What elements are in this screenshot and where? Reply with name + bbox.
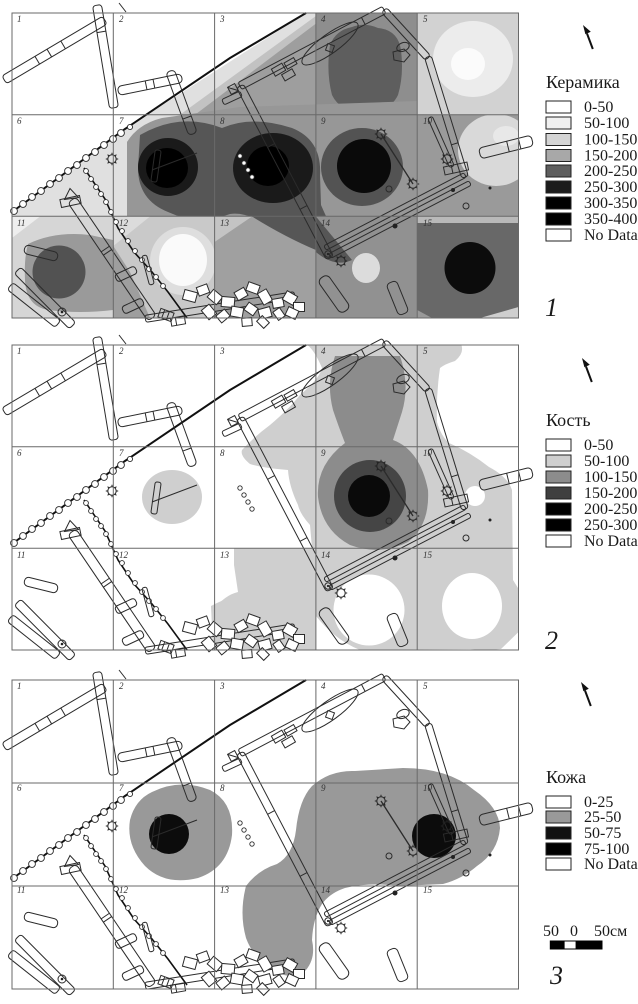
- svg-text:No Data: No Data: [584, 227, 638, 244]
- svg-text:0: 0: [570, 923, 578, 940]
- svg-text:No Data: No Data: [584, 856, 638, 873]
- svg-text:50-75: 50-75: [584, 825, 621, 842]
- svg-text:2: 2: [545, 626, 558, 655]
- svg-text:100-150: 100-150: [584, 469, 637, 486]
- svg-text:50-100: 50-100: [584, 115, 629, 132]
- svg-text:200-250: 200-250: [584, 163, 637, 180]
- svg-text:250-300: 250-300: [584, 517, 637, 534]
- svg-text:25-50: 25-50: [584, 809, 621, 826]
- svg-text:150-200: 150-200: [584, 485, 637, 502]
- svg-text:1: 1: [545, 293, 558, 322]
- svg-text:Кость: Кость: [546, 410, 591, 430]
- svg-text:3: 3: [549, 961, 563, 990]
- svg-text:150-200: 150-200: [584, 148, 637, 165]
- svg-text:50см: 50см: [594, 923, 627, 940]
- svg-text:No Data: No Data: [584, 533, 638, 550]
- svg-text:Кожа: Кожа: [546, 767, 586, 787]
- svg-text:350-400: 350-400: [584, 211, 637, 228]
- svg-text:50-100: 50-100: [584, 453, 629, 470]
- svg-text:0-50: 0-50: [584, 99, 613, 116]
- svg-text:100-150: 100-150: [584, 132, 637, 149]
- svg-text:50: 50: [543, 923, 559, 940]
- svg-text:300-350: 300-350: [584, 195, 637, 212]
- svg-text:Керамика: Керамика: [546, 72, 620, 92]
- svg-text:200-250: 200-250: [584, 501, 637, 518]
- svg-text:0-50: 0-50: [584, 437, 613, 454]
- svg-text:250-300: 250-300: [584, 179, 637, 196]
